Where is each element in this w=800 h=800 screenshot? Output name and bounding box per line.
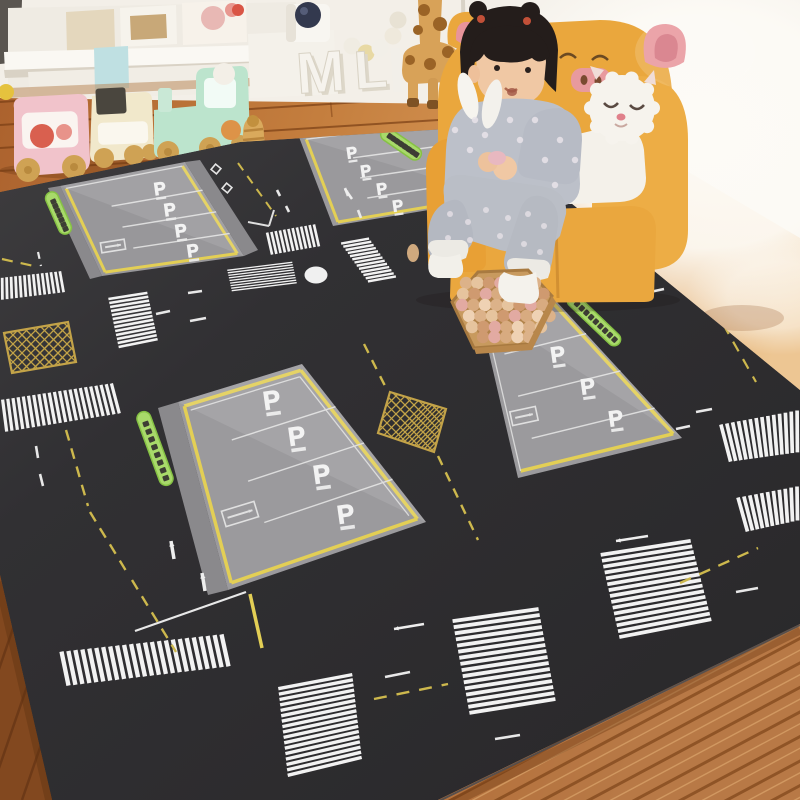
- svg-text:L: L: [352, 39, 389, 101]
- svg-text:M: M: [294, 38, 347, 106]
